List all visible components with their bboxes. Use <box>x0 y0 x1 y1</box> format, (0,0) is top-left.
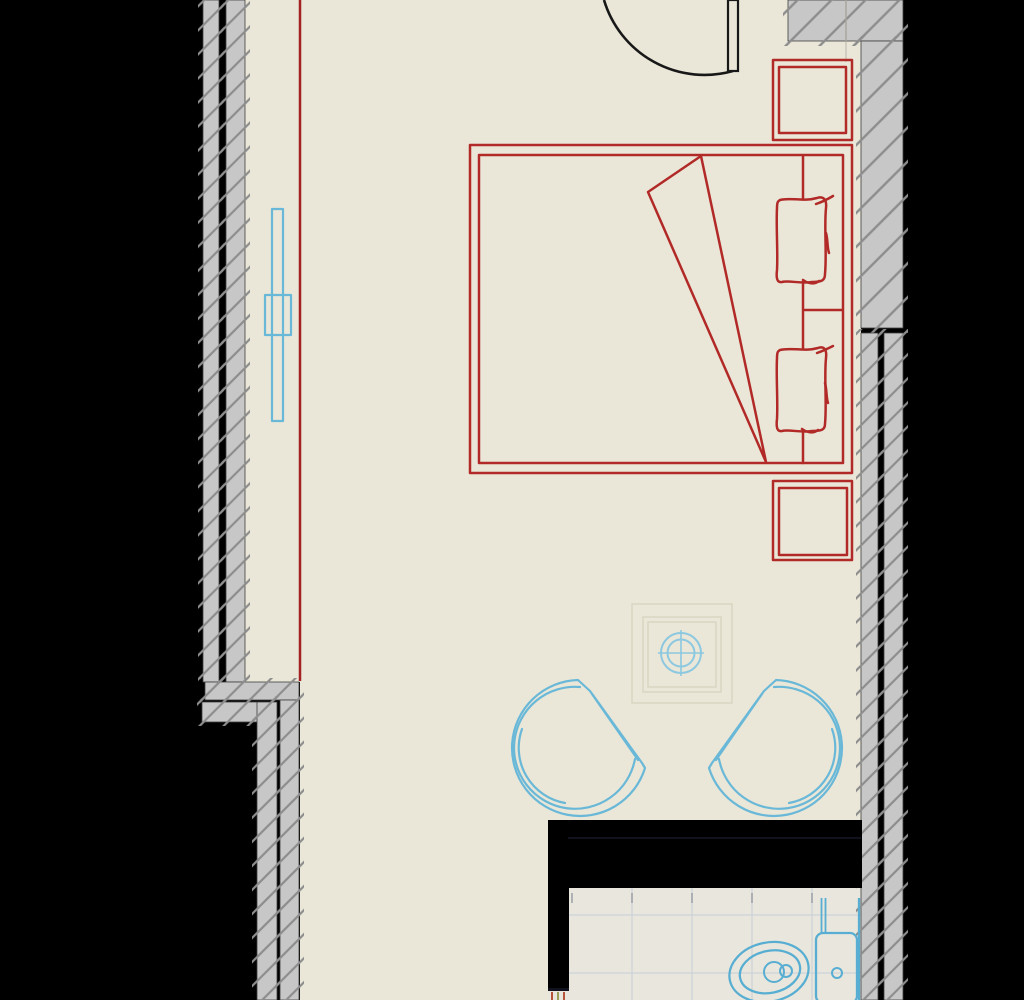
duct-band <box>548 820 862 888</box>
right-exterior-wall-solid <box>856 36 908 333</box>
left-exterior-wall-upper <box>198 0 250 686</box>
duct-column <box>548 888 569 988</box>
bathroom-floor-slab <box>548 888 861 1000</box>
hatch-overlay <box>275 696 304 1000</box>
hatch-overlay <box>879 329 908 1000</box>
hatch-overlay <box>198 0 224 686</box>
floor-area-lower <box>300 682 861 820</box>
floor-plan-drawing <box>0 0 1024 1000</box>
floor-area-main <box>245 41 861 682</box>
hatch-overlay <box>856 36 908 333</box>
left-exterior-wall-lower <box>252 696 304 1000</box>
bathroom-floor <box>548 888 861 1000</box>
right-exterior-wall-lower <box>856 329 908 1000</box>
hatch-overlay <box>221 0 250 686</box>
floor-area-top <box>245 0 788 41</box>
door-leaf <box>728 0 738 71</box>
floor-area-bottom-left <box>300 820 548 1000</box>
floor-plan-canvas <box>0 0 1024 1000</box>
